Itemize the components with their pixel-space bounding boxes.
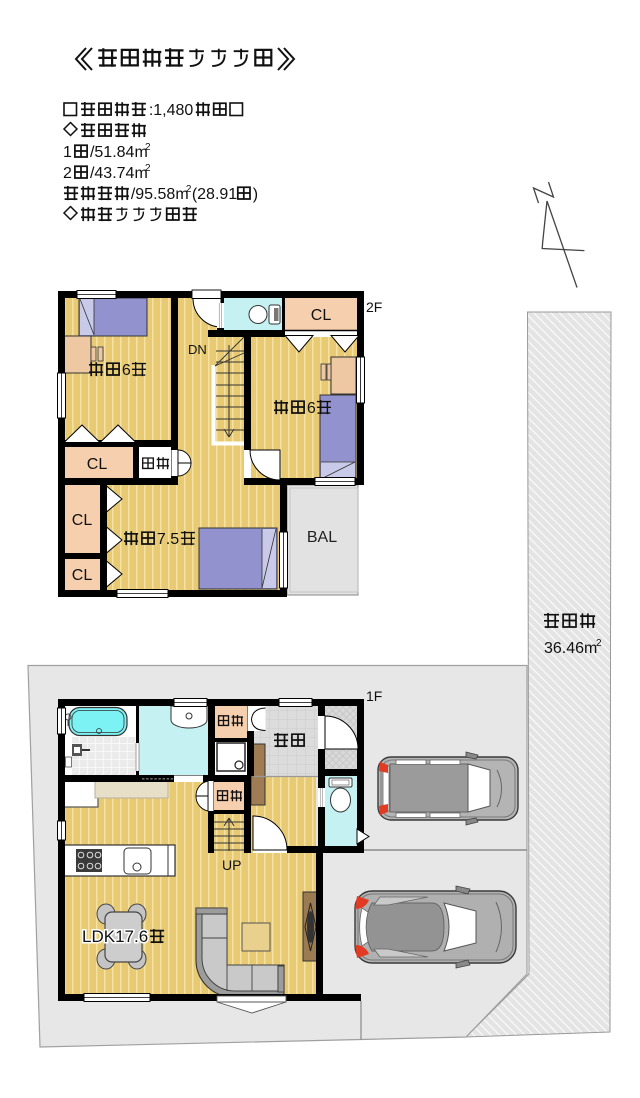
svg-text:2: 2: [63, 165, 72, 182]
svg-text:2F: 2F: [366, 299, 382, 315]
svg-text:7.5: 7.5: [157, 531, 179, 548]
svg-text:6: 6: [122, 362, 131, 379]
svg-text:CL: CL: [311, 307, 332, 324]
svg-text:2: 2: [145, 163, 151, 174]
svg-text:/51.84m: /51.84m: [90, 144, 148, 161]
svg-text:CL: CL: [87, 456, 108, 473]
svg-text:2: 2: [145, 142, 151, 153]
svg-text:CL: CL: [72, 512, 93, 529]
svg-text:CL: CL: [72, 567, 93, 584]
svg-text:BAL: BAL: [307, 529, 337, 546]
svg-text:UP: UP: [222, 857, 241, 873]
svg-text:1: 1: [63, 144, 72, 161]
svg-text::1,480: :1,480: [149, 102, 194, 119]
svg-text:/95.58m: /95.58m: [131, 186, 189, 203]
svg-text:2: 2: [596, 638, 602, 649]
svg-text:DN: DN: [188, 342, 207, 357]
svg-text:(28.91: (28.91: [192, 186, 237, 203]
svg-text:): ): [253, 186, 258, 203]
svg-text:36.46m: 36.46m: [544, 640, 597, 657]
svg-text:LDK17.6: LDK17.6: [82, 927, 148, 946]
svg-text:6: 6: [307, 400, 316, 417]
svg-text:/43.74m: /43.74m: [90, 165, 148, 182]
svg-text:1F: 1F: [366, 688, 382, 704]
